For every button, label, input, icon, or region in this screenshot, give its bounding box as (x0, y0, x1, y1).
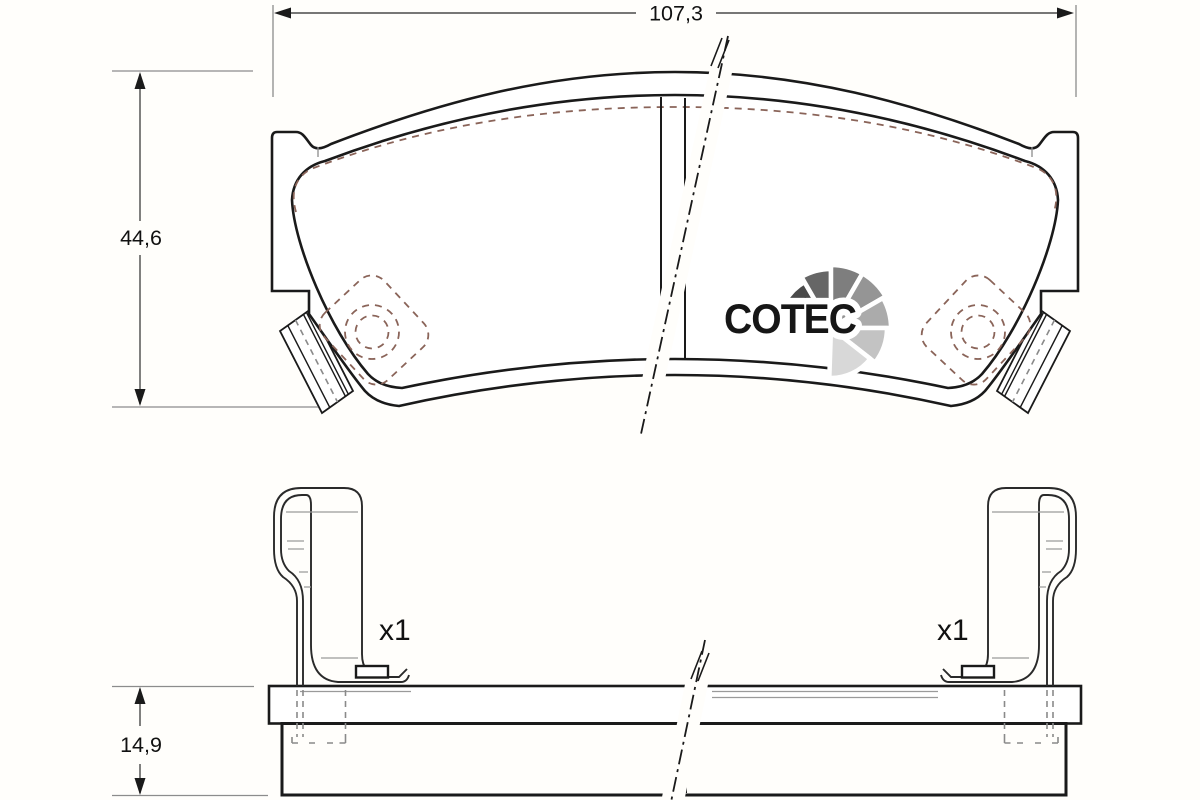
clip-right-hidden-hooks (1005, 737, 1059, 743)
cotec-logo-text: COTEC (724, 295, 857, 342)
clip-quantity-right: x1 (937, 614, 969, 647)
clip-left-inner-contour (281, 495, 409, 686)
brake-pad-technical-drawing: COTEC (0, 0, 1200, 800)
thickness-arrow-bottom (135, 778, 146, 795)
width-dimension-value: 107,3 (649, 2, 703, 26)
height-arrow-top (135, 72, 146, 89)
drawing-canvas: COTEC (0, 0, 1200, 800)
thickness-arrow-top (135, 687, 146, 704)
width-arrow-right (1057, 8, 1074, 19)
height-arrow-bottom (135, 389, 146, 406)
clip-right-outer-contour (943, 488, 1076, 686)
pad-top-view: COTEC (272, 36, 1078, 434)
width-arrow-left (274, 8, 291, 19)
clip-quantity-left: x1 (379, 614, 411, 647)
height-dimension-value: 44,6 (120, 226, 162, 250)
thickness-dimension: 14,9 (112, 687, 268, 796)
pad-edge-view: x1 x1 (269, 488, 1081, 800)
thickness-dimension-value: 14,9 (120, 733, 162, 757)
clip-right-inner-contour (941, 495, 1069, 686)
clip-right-tab (962, 666, 994, 678)
clip-left-outer-contour (274, 488, 407, 686)
clip-left-tab (356, 666, 388, 678)
clip-left-hidden-hooks (292, 737, 346, 743)
